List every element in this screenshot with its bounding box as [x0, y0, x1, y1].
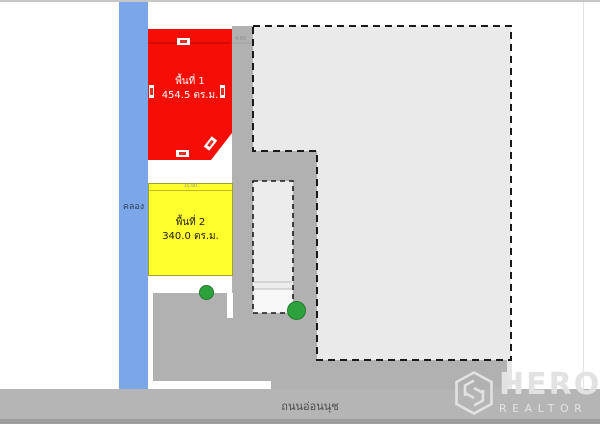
door-marker: [204, 136, 218, 151]
road-label: ถนนอ่อนนุช: [250, 397, 370, 415]
area2-inner-line: [149, 190, 232, 191]
white-gap: [227, 293, 233, 318]
hero-realtor-logo-icon: [453, 370, 495, 416]
area2-title: พื้นที่ 2: [162, 216, 219, 230]
tree-marker: [199, 285, 214, 300]
building-area1: พื้นที่ 1 454.5 ตร.ม.: [148, 29, 232, 160]
page-edge-line: [583, 2, 584, 389]
top-border-line: [0, 0, 600, 2]
area1-size: 454.5 ตร.ม.: [162, 89, 219, 103]
door-marker: [220, 85, 225, 98]
door-marker: [176, 150, 189, 157]
area2-size: 340.0 ตร.ม.: [162, 230, 219, 244]
area1-inner-line: [148, 29, 232, 73]
site-plan: คลอง พื้นที่ 1 454.5 ตร.ม. 4.00 พื้นที: [0, 0, 600, 424]
canal-label: คลอง: [123, 199, 144, 213]
watermark-subtitle: REALTOR: [499, 403, 600, 414]
watermark: HERO REALTOR: [453, 370, 600, 416]
dimension-label: 15.00: [168, 184, 213, 189]
road-shade: [0, 419, 600, 424]
paved-area: [232, 151, 317, 381]
tree-marker: [287, 301, 306, 320]
area1-title: พื้นที่ 1: [162, 75, 219, 89]
building-area2: พื้นที่ 2 340.0 ตร.ม.: [148, 183, 233, 276]
paved-strip: [232, 26, 253, 151]
door-marker: [149, 85, 154, 98]
paved-area: [271, 381, 317, 389]
watermark-brand: HERO: [499, 370, 600, 400]
door-marker: [177, 38, 190, 45]
canal-strip: คลอง: [119, 2, 148, 390]
dimension-label: 4.00: [235, 36, 246, 42]
driveway: [153, 293, 232, 381]
